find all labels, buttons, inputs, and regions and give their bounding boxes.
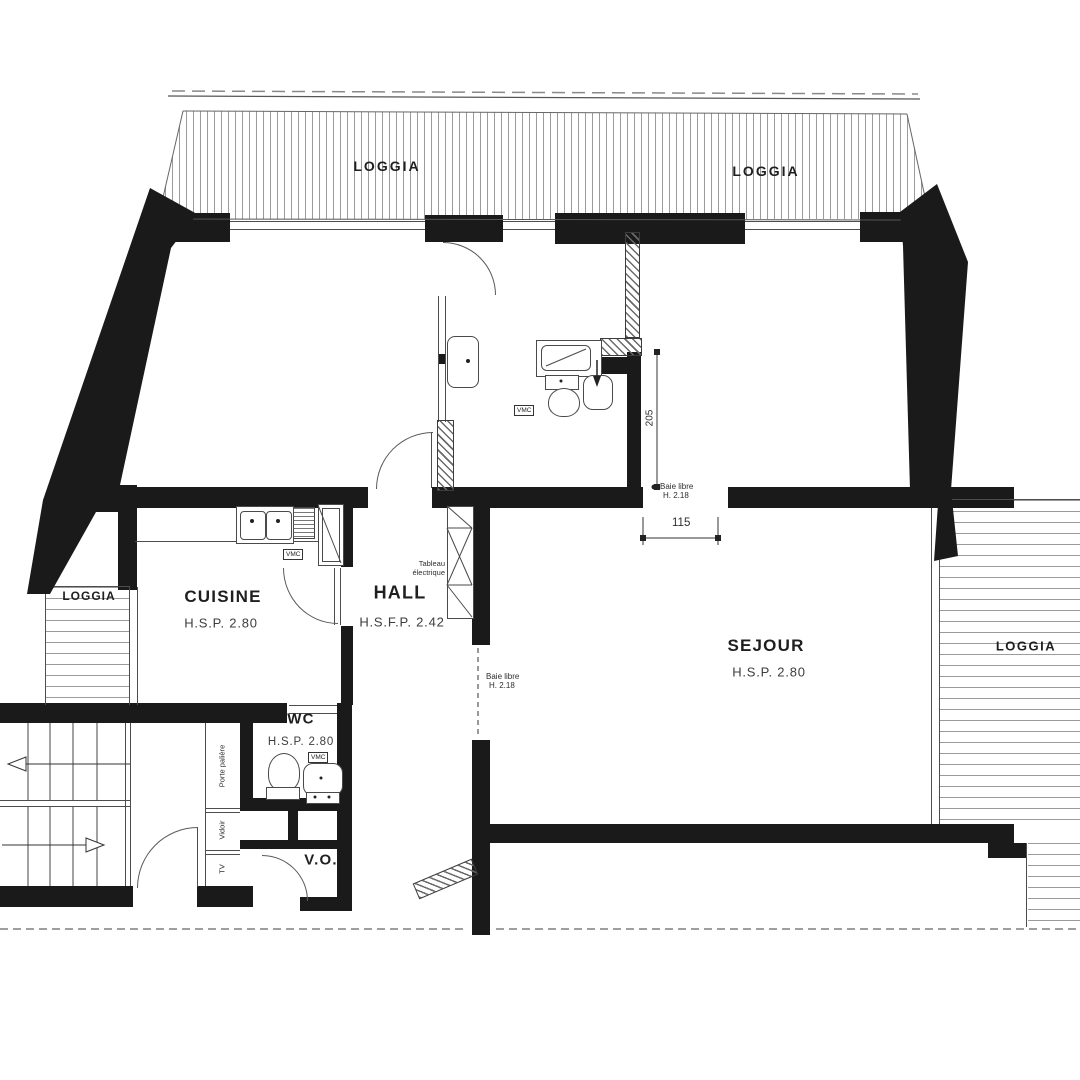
wall (598, 357, 640, 374)
stairs-treads (28, 723, 97, 886)
door-arc (137, 827, 198, 888)
wall (0, 886, 133, 907)
loggia-right-hatch (939, 500, 1080, 824)
room-label-cuisine: CUISINE (184, 587, 261, 607)
stair-landing (0, 806, 130, 807)
stair-edge (130, 723, 131, 886)
wc-washbasin-base (266, 787, 300, 800)
bidet (583, 375, 613, 410)
wall-washbasin (447, 336, 479, 388)
tableau-line2: électrique (411, 569, 445, 578)
ceiling-height-cuisine: H.S.P. 2.80 (184, 616, 258, 631)
door-arc (283, 568, 338, 624)
hatched-wall (437, 420, 454, 491)
loggia-edge (45, 586, 46, 705)
baie-libre-text: Baie libre (660, 482, 693, 491)
room-label-hall: HALL (374, 583, 427, 604)
wall (432, 487, 643, 508)
bay-marker-dot (652, 485, 657, 490)
closet-label-porte-paliere: Porte palière (218, 745, 227, 788)
door-arc (443, 242, 496, 295)
window (745, 221, 860, 230)
loggia-hatch-bottom (158, 219, 930, 220)
wall (555, 213, 745, 244)
stairs-arrow-up (8, 757, 130, 771)
window (230, 221, 425, 230)
room-label-vo: V.O. (304, 852, 337, 869)
wall (240, 840, 352, 849)
room-label-loggia-top-right: LOGGIA (732, 163, 799, 179)
closet-line (206, 812, 240, 813)
wall (118, 510, 137, 590)
ceiling-height-sejour: H.S.P. 2.80 (732, 665, 806, 680)
loggia-left-hatch (46, 587, 130, 705)
wall (197, 886, 253, 907)
vmc-box-cuisine: VMC (283, 549, 303, 560)
stair-edge (125, 723, 126, 886)
baie-libre-text: Baie libre (486, 672, 519, 681)
hatched-wall (625, 232, 640, 338)
vmc-box-wc: VMC (308, 752, 328, 763)
door-arc (262, 855, 308, 901)
baie-libre-note-2: Baie libre H. 2.18 (486, 672, 519, 690)
door-arc (376, 432, 433, 489)
room-label-loggia-left: LOGGIA (62, 589, 115, 603)
closet-label-vidoir: Vidoir (218, 820, 227, 839)
vmc-box-bathroom: VMC (514, 405, 534, 416)
window (931, 508, 940, 824)
left-exterior-wall (27, 188, 197, 594)
toilet-bowl (548, 388, 580, 417)
room-label-wc: WC (287, 711, 314, 728)
wc-toilet-tank (306, 792, 340, 804)
loggia-tile-edge (172, 91, 918, 94)
dimension-205-label: 205 (646, 410, 655, 427)
closet-line (206, 854, 240, 855)
window (129, 587, 138, 705)
electrical-cabinet (447, 506, 474, 619)
floor-plan: LOGGIA LOGGIA LOGGIA LOGGIA CUISINE H.S.… (0, 0, 1080, 1080)
stair-landing (0, 800, 130, 801)
room-label-sejour: SEJOUR (727, 636, 804, 656)
closet-label-tv: TV (218, 864, 227, 874)
tableau-electrique-label: Tableau électrique (411, 560, 445, 577)
wall (425, 215, 503, 242)
closet-line (206, 850, 240, 851)
loggia-edge (45, 586, 130, 587)
wall (341, 626, 353, 705)
stairs-arrow-down (2, 838, 104, 852)
room-label-loggia-right: LOGGIA (996, 639, 1056, 654)
wall (728, 487, 1014, 508)
baie-height-text: H. 2.18 (663, 491, 693, 500)
wall (240, 703, 253, 811)
wall (288, 811, 298, 840)
wall (488, 824, 1014, 843)
room-label-loggia-top-left: LOGGIA (353, 158, 420, 174)
baie-libre-note-1: Baie libre H. 2.18 (660, 482, 693, 500)
washbasin-bowl (541, 345, 591, 371)
wall (150, 213, 230, 242)
sink-basin (240, 511, 266, 540)
sink-basin (266, 511, 292, 540)
dimension-115-label: 115 (672, 519, 690, 528)
ceiling-height-wc: H.S.P. 2.80 (268, 736, 334, 748)
partition-wall (438, 296, 446, 422)
loggia-edge (939, 499, 1080, 500)
wall (472, 508, 490, 645)
closet-line (205, 723, 206, 886)
baie-height-text: H. 2.18 (489, 681, 519, 690)
wall (860, 212, 936, 242)
wc-washbasin (268, 753, 300, 791)
wall (988, 843, 1026, 858)
window (503, 221, 555, 230)
ceiling-height-hall: H.S.F.P. 2.42 (359, 615, 444, 630)
entry-door-leaf (413, 859, 479, 900)
loggia-right-lower-hatch (1028, 843, 1080, 928)
closet-line (206, 808, 240, 809)
loggia-top-hatch (158, 108, 930, 219)
hatched-wall (600, 338, 642, 356)
tall-cabinet-inner (322, 508, 340, 562)
loggia-edge (1026, 843, 1027, 927)
loggia-outer-edge (168, 96, 920, 99)
